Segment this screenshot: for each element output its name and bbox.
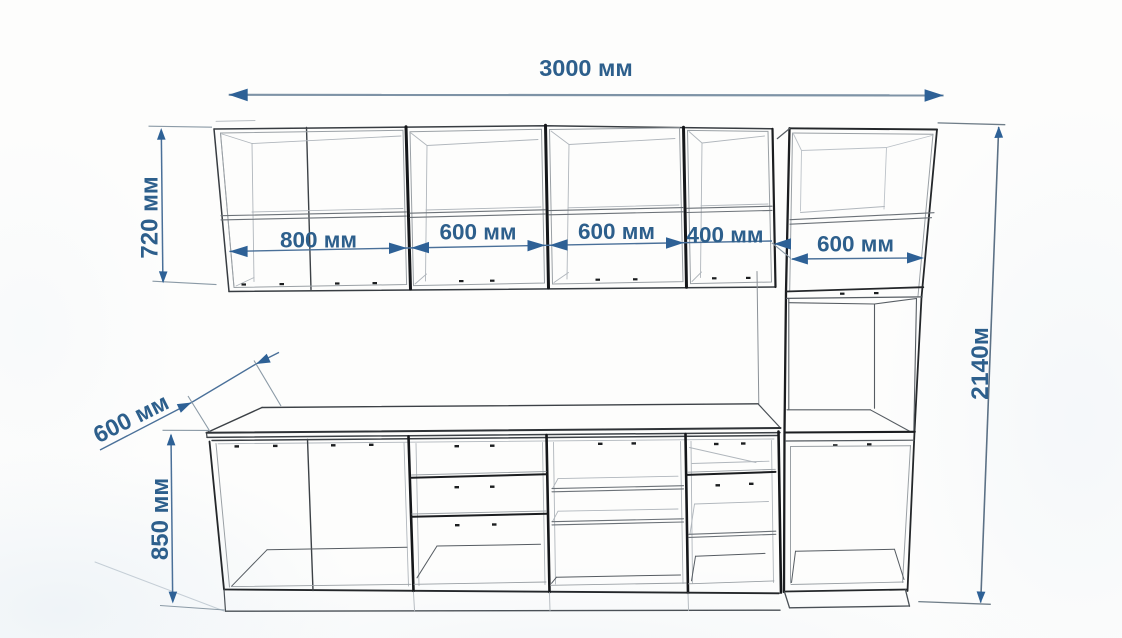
svg-text:2140м: 2140м — [967, 327, 994, 400]
svg-text:600 мм: 600 мм — [578, 219, 655, 244]
svg-text:800 мм: 800 мм — [280, 227, 357, 252]
svg-text:600 мм: 600 мм — [817, 232, 894, 257]
svg-text:720 мм: 720 мм — [137, 176, 164, 258]
svg-text:400 мм: 400 мм — [686, 223, 763, 248]
svg-text:3000 мм: 3000 мм — [539, 55, 633, 81]
svg-text:600 мм: 600 мм — [439, 220, 516, 245]
svg-text:850 мм: 850 мм — [147, 478, 174, 560]
